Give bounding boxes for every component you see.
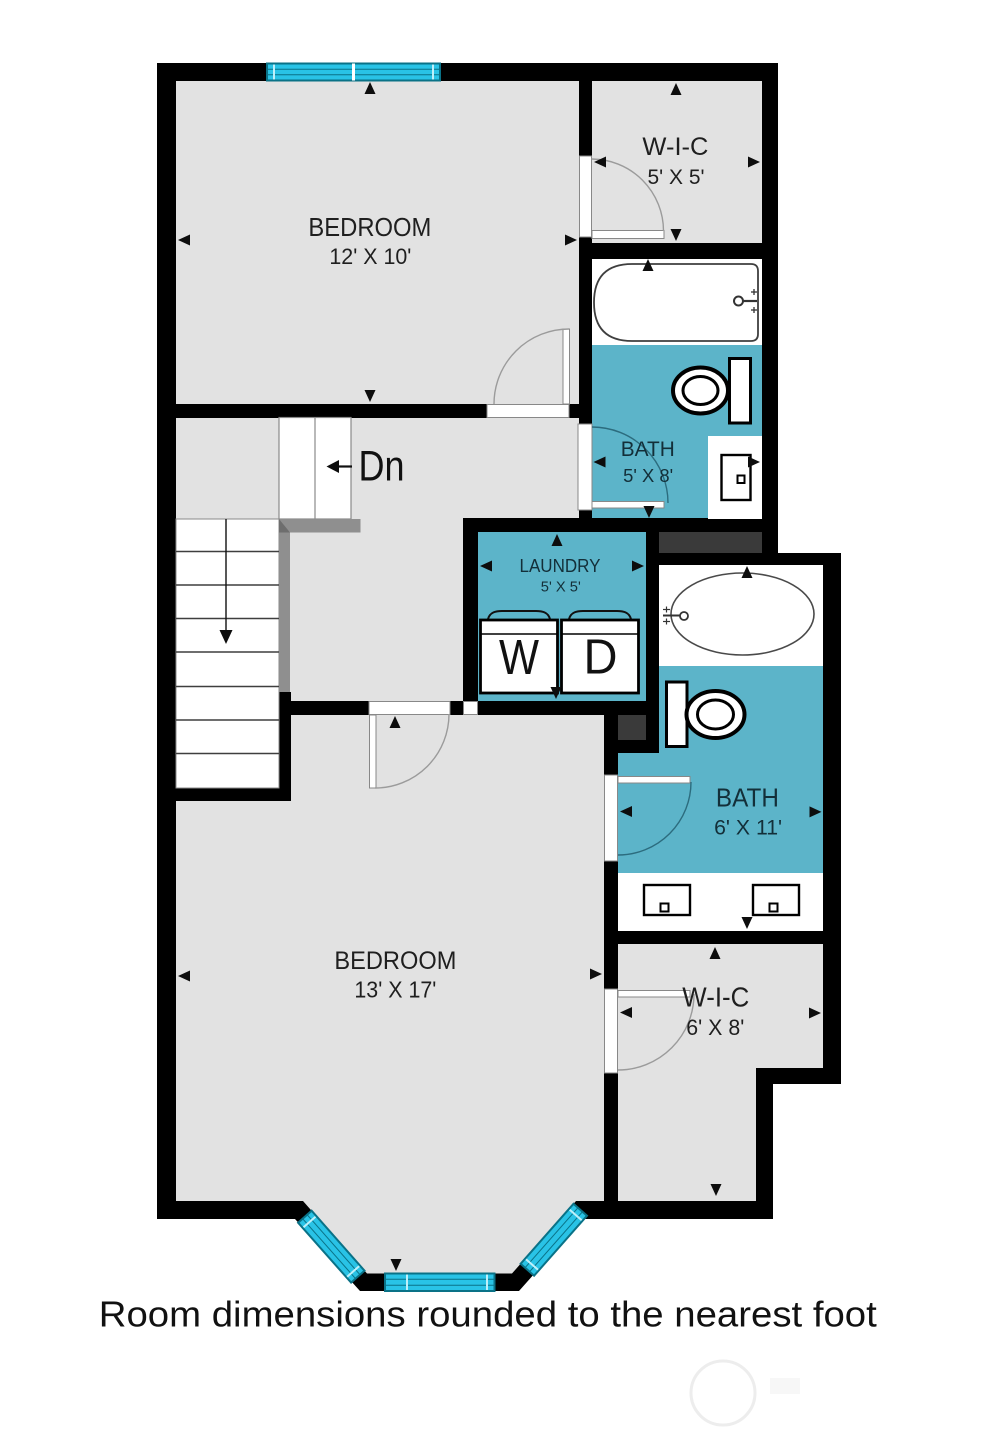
svg-text:W-I-C: W-I-C: [642, 133, 708, 161]
svg-text:W: W: [499, 631, 540, 685]
svg-text:BEDROOM: BEDROOM: [334, 947, 456, 975]
svg-text:6' X 8': 6' X 8': [686, 1015, 744, 1040]
svg-text:BEDROOM: BEDROOM: [308, 212, 431, 242]
svg-text:BATH: BATH: [716, 785, 779, 813]
svg-text:LAUNDRY: LAUNDRY: [520, 556, 601, 576]
svg-text:D: D: [584, 631, 618, 685]
svg-text:6' X 11': 6' X 11': [714, 815, 782, 840]
svg-text:W-I-C: W-I-C: [682, 982, 749, 1013]
svg-text:BATH: BATH: [621, 437, 675, 461]
svg-text:12' X 10': 12' X 10': [329, 244, 411, 269]
svg-text:5' X 5': 5' X 5': [648, 166, 705, 189]
svg-text:13' X 17': 13' X 17': [354, 977, 436, 1003]
svg-text:5' X 5': 5' X 5': [541, 579, 581, 595]
svg-text:Room dimensions rounded to the: Room dimensions rounded to the nearest f…: [99, 1293, 877, 1334]
svg-text:5' X 8': 5' X 8': [623, 466, 673, 486]
svg-text:Dn: Dn: [359, 443, 405, 491]
